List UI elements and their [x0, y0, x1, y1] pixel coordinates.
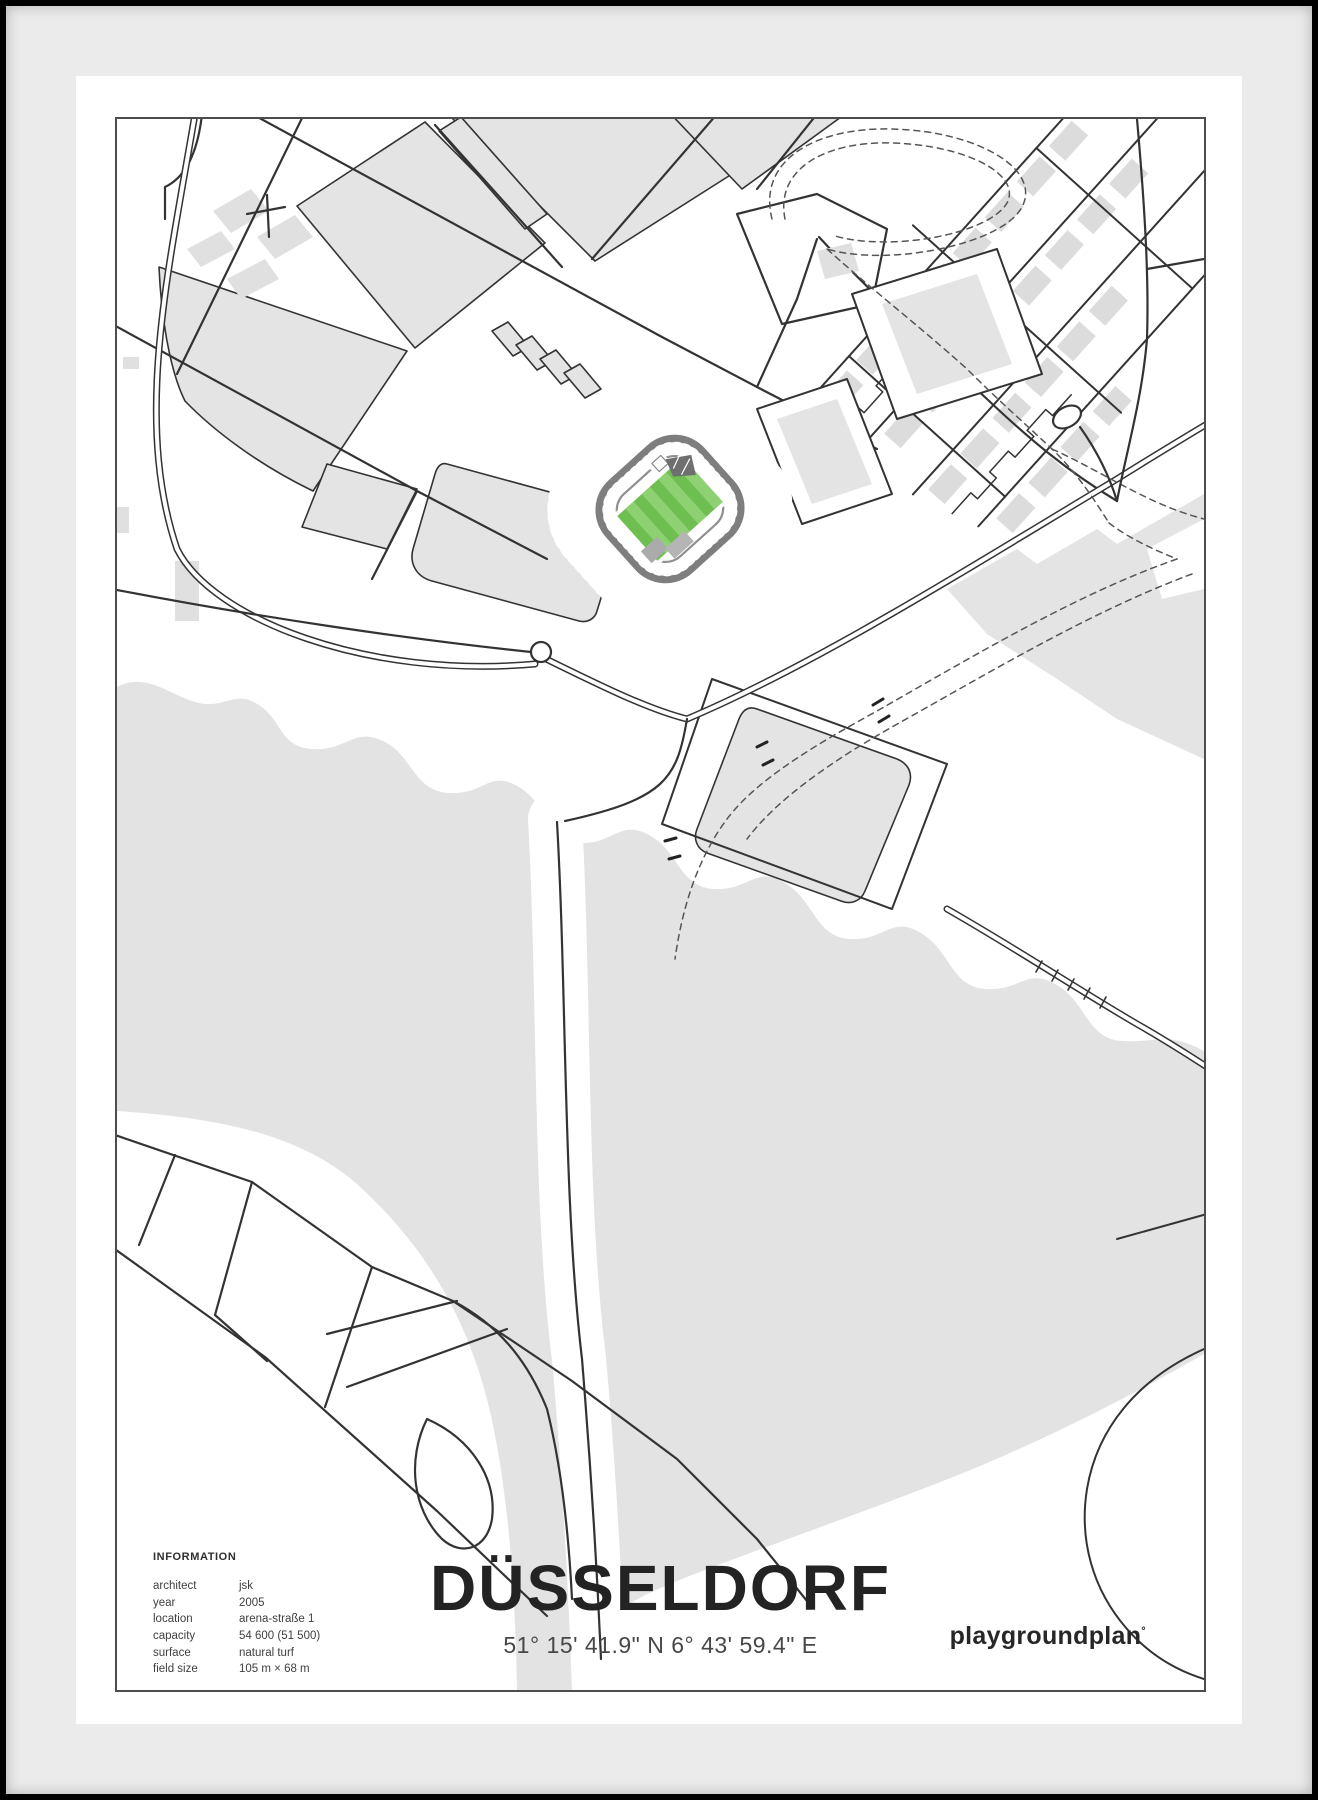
- stadium-map: [117, 119, 1204, 1690]
- brand-mark: °: [1141, 1626, 1146, 1638]
- poster-content: INFORMATION architect jsk year 2005 loca…: [115, 117, 1206, 1692]
- frame-mat: INFORMATION architect jsk year 2005 loca…: [6, 6, 1312, 1794]
- poster-title: DÜSSELDORF: [117, 1555, 1204, 1622]
- info-row-field-size: field size 105 m × 68 m: [153, 1661, 423, 1678]
- brand-logo: playgroundplan°: [950, 1622, 1146, 1651]
- brand-name: playgroundplan: [950, 1622, 1142, 1650]
- poster-frame: INFORMATION architect jsk year 2005 loca…: [0, 0, 1318, 1800]
- poster-paper: INFORMATION architect jsk year 2005 loca…: [76, 76, 1242, 1724]
- fairground-area: [947, 494, 1204, 759]
- roundabout: [531, 642, 551, 662]
- riverbank-area: [117, 682, 1204, 1690]
